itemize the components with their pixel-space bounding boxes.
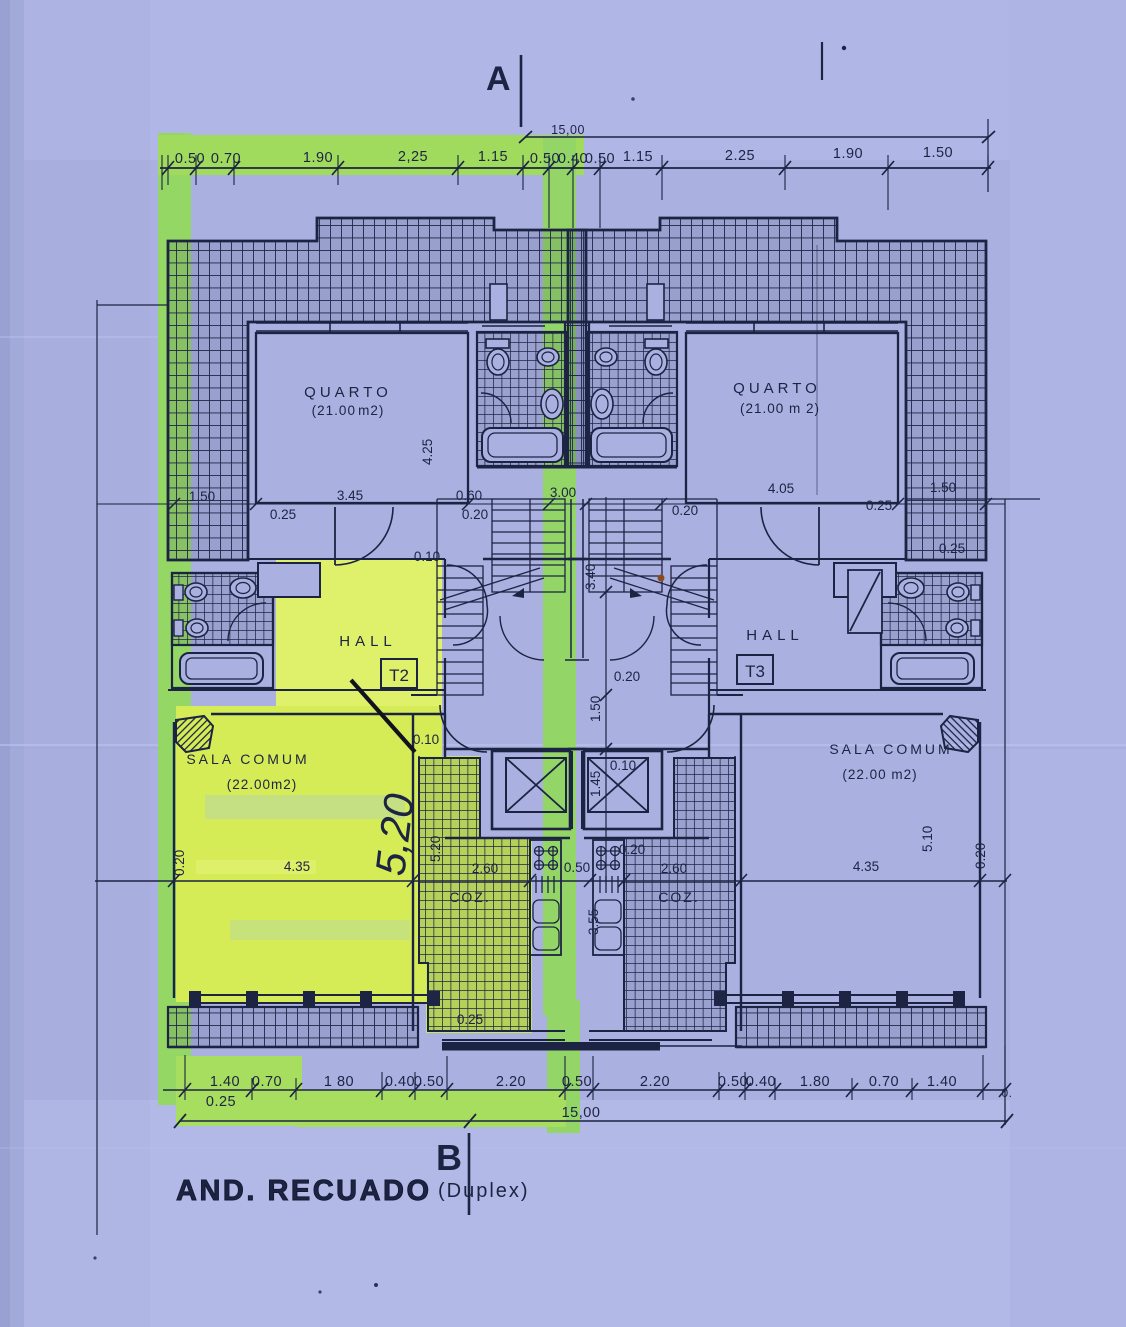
svg-text:4.25: 4.25 (420, 439, 435, 465)
svg-text:(22.00 m2): (22.00 m2) (842, 767, 917, 782)
svg-text:2.20: 2.20 (496, 1074, 526, 1090)
svg-text:15,00: 15,00 (551, 123, 585, 137)
svg-text:0.25: 0.25 (457, 1012, 483, 1027)
svg-text:0.25: 0.25 (866, 498, 892, 513)
svg-text:0.50: 0.50 (414, 1074, 444, 1090)
svg-text:A: A (486, 60, 512, 98)
svg-text:1.50: 1.50 (930, 480, 956, 495)
svg-text:1.15: 1.15 (623, 149, 653, 165)
svg-text:1.40: 1.40 (927, 1074, 957, 1090)
svg-text:QUARTO: QUARTO (304, 384, 392, 401)
svg-text:0.25: 0.25 (270, 507, 296, 522)
svg-text:1.90: 1.90 (303, 150, 333, 166)
svg-text:1.40: 1.40 (210, 1074, 240, 1090)
svg-text:5.20: 5.20 (428, 836, 443, 862)
svg-text:0.10: 0.10 (610, 758, 636, 773)
svg-text:SALA COMUM: SALA COMUM (829, 741, 952, 757)
svg-text:1.15: 1.15 (478, 149, 508, 165)
svg-text:1.50: 1.50 (588, 696, 603, 722)
svg-text:2,25: 2,25 (398, 149, 428, 165)
svg-text:3.40: 3.40 (583, 564, 598, 590)
svg-text:4.35: 4.35 (284, 859, 310, 874)
svg-text:0.20: 0.20 (462, 507, 488, 522)
svg-text:0.50: 0.50 (585, 151, 615, 167)
svg-text:0.70: 0.70 (252, 1074, 282, 1090)
svg-text:0.20: 0.20 (973, 843, 988, 869)
svg-text:COZ.: COZ. (449, 889, 490, 905)
svg-text:0.70: 0.70 (869, 1074, 899, 1090)
svg-text:HALL: HALL (746, 627, 804, 644)
svg-text:0.70: 0.70 (211, 151, 241, 167)
svg-text:0.20: 0.20 (672, 503, 698, 518)
svg-text:4.05: 4.05 (768, 481, 794, 496)
svg-text:5.10: 5.10 (920, 826, 935, 852)
svg-text:(22.00m2): (22.00m2) (227, 777, 298, 792)
svg-text:0.40: 0.40 (746, 1074, 776, 1090)
svg-text:3.45: 3.45 (337, 488, 363, 503)
svg-text:2.25: 2.25 (725, 148, 755, 164)
svg-text:3.55: 3.55 (586, 909, 601, 935)
svg-text:0.40: 0.40 (558, 151, 588, 167)
svg-text:COZ.: COZ. (658, 889, 699, 905)
svg-text:0.50: 0.50 (718, 1074, 748, 1090)
svg-text:0.50: 0.50 (175, 151, 205, 167)
svg-text:15,00: 15,00 (562, 1105, 601, 1121)
svg-text:(Duplex): (Duplex) (438, 1180, 530, 1202)
svg-text:(21.00 m 2): (21.00 m 2) (740, 401, 820, 416)
svg-text:SALA COMUM: SALA COMUM (186, 751, 309, 767)
svg-text:1 80: 1 80 (324, 1074, 354, 1090)
svg-text:1.45: 1.45 (588, 771, 603, 797)
svg-text:1.80: 1.80 (800, 1074, 830, 1090)
svg-text:T2: T2 (389, 666, 409, 685)
svg-text:0.20: 0.20 (614, 669, 640, 684)
svg-text:T3: T3 (745, 662, 765, 681)
svg-text:3.00: 3.00 (550, 485, 576, 500)
svg-text:1.90: 1.90 (833, 146, 863, 162)
svg-text:2.60: 2.60 (661, 861, 687, 876)
svg-text:B: B (436, 1137, 462, 1178)
svg-text:0.60: 0.60 (456, 488, 482, 503)
svg-text:4.35: 4.35 (853, 859, 879, 874)
svg-text:2.60: 2.60 (472, 861, 498, 876)
svg-text:5,20: 5,20 (366, 791, 423, 878)
svg-text:QUARTO: QUARTO (733, 380, 821, 397)
svg-text:(21.00 m2): (21.00 m2) (312, 403, 385, 418)
svg-text:0.: 0. (1001, 1086, 1012, 1100)
svg-text:0.50: 0.50 (562, 1074, 592, 1090)
svg-text:0.10: 0.10 (414, 549, 440, 564)
svg-text:0.25: 0.25 (939, 541, 965, 556)
svg-text:0.50: 0.50 (564, 860, 590, 875)
svg-text:0.50: 0.50 (530, 151, 560, 167)
svg-text:2.20: 2.20 (640, 1074, 670, 1090)
svg-text:1.50: 1.50 (923, 145, 953, 161)
svg-text:AND. RECUADO: AND. RECUADO (176, 1175, 432, 1207)
svg-text:0.20: 0.20 (172, 850, 187, 876)
svg-text:0.10: 0.10 (413, 732, 439, 747)
svg-text:0.25: 0.25 (206, 1094, 236, 1110)
svg-text:0.40: 0.40 (385, 1074, 415, 1090)
svg-text:1.50: 1.50 (189, 489, 215, 504)
svg-text:0.20: 0.20 (619, 842, 645, 857)
svg-text:HALL: HALL (339, 633, 397, 650)
